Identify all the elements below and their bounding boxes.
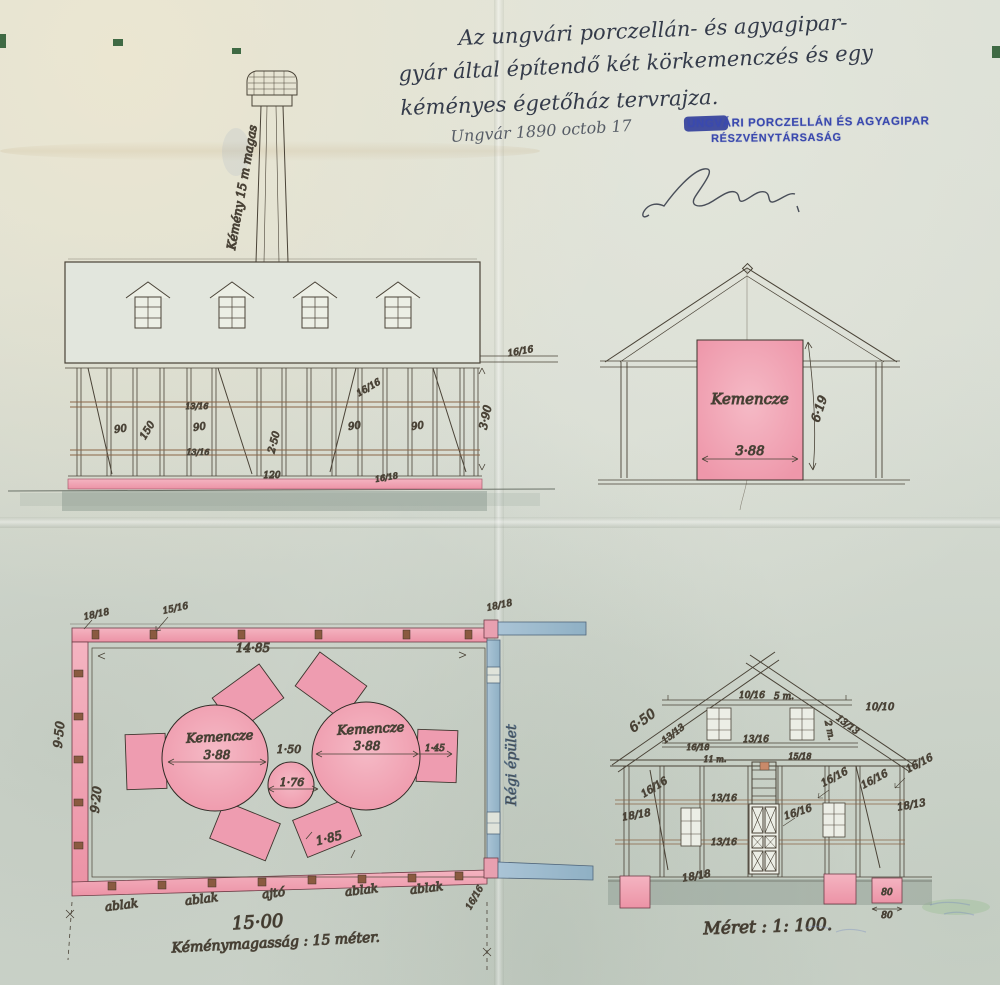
post-r1-dim: 16/16	[820, 766, 851, 790]
sill-left-dim: 18/18	[621, 808, 651, 824]
corner-tl: 18/18	[83, 607, 111, 622]
foundation-block-label: 80	[881, 888, 893, 898]
total-width: 15·00	[231, 911, 284, 935]
outer-depth: 9·50	[51, 720, 68, 748]
purlin-right-dim: 10/10	[866, 702, 895, 713]
tie-center-dim: 13/16	[743, 735, 769, 745]
rafter-right-dim: 13/13	[834, 714, 861, 738]
kiln-width-dim: 3·88	[736, 444, 765, 459]
kiln-section-label: Kemencze	[710, 390, 789, 408]
tie-left-dim: 16/18	[686, 743, 709, 752]
scanned-blueprint-page: { "header": { "title_line1": "Az ungvári…	[0, 0, 1000, 985]
kiln2-diameter: 3·88	[354, 739, 381, 753]
door-post-dim: 16/16	[783, 803, 814, 823]
plate-span: 11 m.	[704, 755, 727, 764]
opening-2: ablak	[184, 890, 219, 908]
front-elevation-drawing: Kémény 15 m magas 90 150 90 13/16	[8, 71, 799, 511]
dim-wall-height: 2·50	[266, 430, 282, 456]
cross-section-drawing: Kemencze 3·88 6·19	[598, 264, 910, 510]
kiln-gap: 1·50	[277, 743, 302, 756]
flue-diameter: 1·76	[280, 776, 305, 789]
plate-right-dim: 15/18	[788, 752, 811, 761]
dim-beam-right: 16/16	[507, 345, 535, 359]
dim-timber-upper: 13/16	[185, 402, 208, 411]
corner-post-right-dim: 16/16	[905, 752, 936, 776]
collar-dim: 10/16	[739, 691, 765, 701]
dim-door-width: 120	[263, 471, 280, 481]
corner-tr: 18/18	[486, 598, 514, 613]
foundation-width-dim: 80	[881, 911, 893, 921]
gable-elevation-drawing: 80 80 6·50 13/13 10/16 5 m. 10/10 13/13 …	[608, 652, 974, 939]
dim-bay2: 90	[193, 421, 208, 434]
dim-right-height: 3·90	[477, 404, 495, 431]
door	[749, 804, 779, 874]
roof-band	[65, 262, 480, 363]
side-clearance: 1·45	[425, 744, 445, 754]
chimney-note: Kéménymagasság : 15 méter.	[170, 930, 380, 957]
dim-bay4: 90	[411, 420, 426, 433]
old-building: Régi épület	[484, 620, 593, 880]
dim-timber-lower: 13/16	[186, 448, 209, 457]
post-r2-dim: 16/16	[860, 768, 891, 792]
signature	[643, 169, 799, 217]
collar-span: 5 m.	[774, 692, 794, 702]
dim-bay1: 90	[114, 423, 129, 436]
inner-width: 14·85	[236, 641, 270, 655]
opening-5: ablak	[409, 879, 444, 897]
opening-3: ajtó	[261, 885, 285, 902]
rail-lower-dim: 13/16	[711, 838, 737, 848]
inner-depth: 9·20	[88, 785, 105, 813]
foundation-detail: 80 80	[872, 878, 902, 921]
drawing-sheet: Kémény 15 m magas 90 150 90 13/16	[0, 0, 1000, 985]
floor-plan-drawing: Kemencze Kemencze 3·88 3·88 1·45 1·50 1·…	[51, 598, 514, 970]
dim-mid-height: 150	[138, 419, 158, 442]
rail-upper-dim: 13/16	[711, 794, 737, 804]
kiln-height-dim: 6·19	[808, 394, 830, 424]
corner-br: 16/16	[464, 884, 486, 912]
roof-left-dim: 6·50	[627, 707, 659, 736]
dim-beam-inner: 16/16	[355, 377, 383, 399]
opening-4: ablak	[344, 881, 379, 899]
opening-1: ablak	[104, 896, 139, 914]
kiln1-diameter: 3·88	[204, 748, 231, 762]
scale-label: Méret : 1: 100.	[702, 915, 832, 940]
old-building-label: Régi épület	[504, 724, 520, 807]
top-post: 15/16	[162, 601, 190, 616]
dim-bay3: 90	[348, 420, 363, 433]
strut-right-dim: 2 m.	[822, 719, 836, 742]
kiln2-circle	[312, 702, 420, 810]
